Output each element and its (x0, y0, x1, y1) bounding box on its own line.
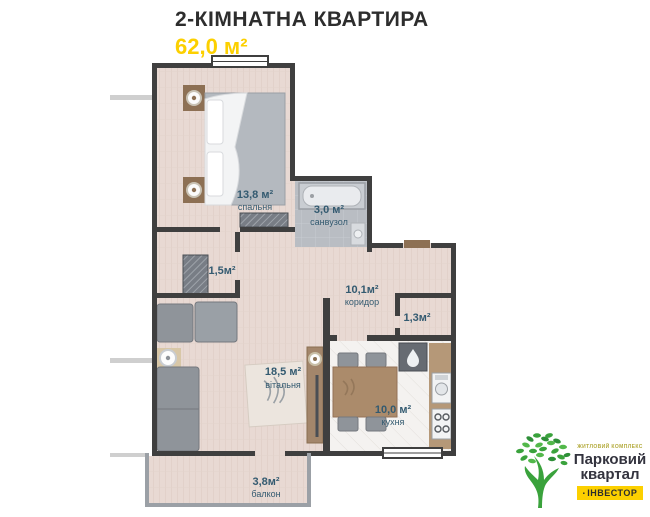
kitchen-name-label: кухня (382, 417, 405, 427)
balcony-area-label: 3,8м² (252, 476, 279, 488)
logo-developer-name: ІНВЕСТОР (587, 488, 637, 498)
bathroom-name-label: санвузол (310, 217, 348, 227)
floorplan-page: 2-КІМНАТНА КВАРТИРА 62,0 м² 2 32,3 62,0 (0, 0, 650, 517)
corridor-name-label: коридор (345, 297, 379, 307)
armchair (195, 302, 237, 342)
logo-brand-line1: Парковий (570, 452, 650, 467)
stove (432, 409, 451, 439)
closet-area-label: 1,5м² (208, 265, 235, 277)
chair (366, 353, 386, 367)
logo-complex-type: ЖИТЛОВИЙ КОМПЛЕКС (570, 444, 650, 450)
bedroom-wardrobe (240, 213, 288, 227)
closet-shelving (183, 255, 208, 297)
floor-plan: 13,8 м² спальня 3,0 м² санвузол 1,5м² 10… (105, 55, 470, 515)
balcony-name-label: балкон (251, 489, 280, 499)
corridor-area-label: 10,1м² (345, 284, 379, 296)
bed-pillow (207, 100, 223, 144)
bedroom-area-label: 13,8 м² (237, 189, 274, 201)
bathroom-area-label: 3,0 м² (314, 204, 344, 216)
page-title: 2-КІМНАТНА КВАРТИРА (175, 8, 429, 32)
chair (338, 417, 358, 431)
logo-text-block: ЖИТЛОВИЙ КОМПЛЕКС Парковий квартал ▪ІНВЕ… (570, 444, 650, 501)
developer-mark-icon: ▪ (583, 491, 586, 497)
developer-logo: ЖИТЛОВИЙ КОМПЛЕКС Парковий квартал ▪ІНВЕ… (512, 430, 650, 515)
logo-brand-name: Парковий квартал (570, 452, 650, 482)
armchair (157, 304, 193, 342)
logo-brand-line2: квартал (570, 467, 650, 482)
chair (338, 353, 358, 367)
entrance-door (404, 240, 430, 248)
bedroom-name-label: спальня (238, 202, 272, 212)
storage-area-label: 1,3м² (403, 312, 430, 324)
kitchen-area-label: 10,0 м² (375, 404, 412, 416)
living-area-label: 18,5 м² (265, 366, 302, 378)
logo-developer-badge: ▪ІНВЕСТОР (577, 486, 644, 500)
balcony-floor (149, 456, 307, 503)
wall-stubs (110, 95, 152, 457)
living-name-label: вітальня (265, 380, 301, 390)
tree-icon (512, 432, 572, 512)
bed-pillow (207, 152, 223, 196)
